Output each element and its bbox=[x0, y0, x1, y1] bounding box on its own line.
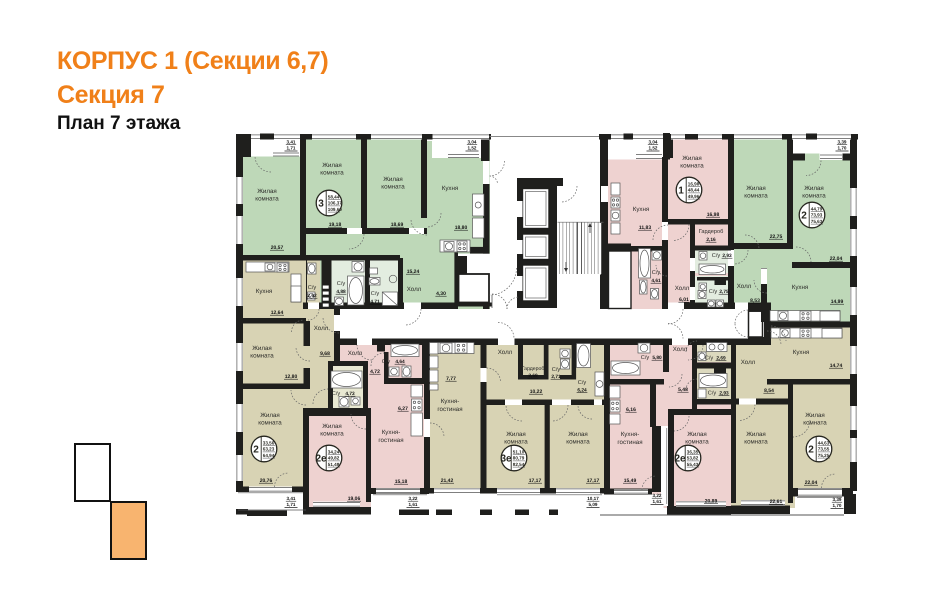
svg-text:2е: 2е bbox=[315, 454, 327, 465]
svg-text:комната: комната bbox=[744, 438, 768, 445]
svg-text:1,52: 1,52 bbox=[468, 146, 477, 151]
svg-text:33,56: 33,56 bbox=[263, 440, 275, 445]
svg-text:Холл: Холл bbox=[741, 359, 756, 366]
svg-text:гостиная: гостиная bbox=[378, 437, 403, 444]
svg-text:Холл: Холл bbox=[675, 285, 690, 292]
svg-text:Холл: Холл bbox=[498, 349, 513, 356]
svg-text:Кухня-: Кухня- bbox=[621, 431, 640, 438]
svg-text:34,24: 34,24 bbox=[328, 449, 340, 454]
svg-text:44,79: 44,79 bbox=[811, 206, 823, 211]
svg-text:комната: комната bbox=[744, 192, 768, 199]
svg-text:Кухня: Кухня bbox=[633, 206, 650, 213]
svg-text:Гардероб: Гардероб bbox=[699, 228, 724, 235]
svg-text:80,79: 80,79 bbox=[513, 456, 525, 461]
svg-text:комната: комната bbox=[381, 183, 405, 190]
svg-text:С/у: С/у bbox=[652, 269, 661, 276]
svg-text:Жилая: Жилая bbox=[260, 412, 280, 419]
svg-text:55,43: 55,43 bbox=[687, 462, 699, 467]
svg-text:3,39: 3,39 bbox=[833, 497, 842, 502]
svg-text:комната: комната bbox=[680, 162, 704, 169]
svg-text:С/у: С/у bbox=[332, 390, 341, 397]
svg-text:106,37: 106,37 bbox=[328, 201, 342, 206]
svg-text:С/у: С/у bbox=[578, 379, 587, 386]
svg-text:Кухня: Кухня bbox=[256, 288, 273, 295]
svg-text:С/у: С/у bbox=[552, 366, 561, 373]
svg-text:109,60: 109,60 bbox=[328, 207, 342, 212]
svg-text:комната: комната bbox=[803, 419, 827, 426]
svg-text:75,25: 75,25 bbox=[818, 453, 830, 458]
svg-text:3,04: 3,04 bbox=[649, 140, 658, 145]
svg-text:Холл: Холл bbox=[314, 325, 329, 332]
svg-text:36,35: 36,35 bbox=[687, 449, 699, 454]
svg-text:10,17: 10,17 bbox=[587, 496, 599, 501]
svg-text:С/у: С/у bbox=[641, 354, 650, 361]
svg-text:1: 1 bbox=[678, 186, 684, 197]
svg-text:44,63: 44,63 bbox=[818, 440, 830, 445]
svg-text:С/у: С/у bbox=[371, 290, 380, 297]
svg-text:Кухня-: Кухня- bbox=[441, 398, 460, 405]
svg-text:2: 2 bbox=[253, 445, 259, 456]
svg-text:2е: 2е bbox=[674, 454, 686, 465]
svg-text:1,70: 1,70 bbox=[838, 146, 847, 151]
svg-text:Жилая: Жилая bbox=[568, 431, 588, 438]
svg-text:комната: комната bbox=[802, 192, 826, 199]
svg-text:Жилая: Жилая bbox=[804, 185, 824, 192]
svg-text:Жилая: Жилая bbox=[257, 188, 277, 195]
svg-text:73,93: 73,93 bbox=[811, 213, 823, 218]
svg-text:51,10: 51,10 bbox=[513, 449, 525, 454]
svg-text:63,23: 63,23 bbox=[263, 447, 275, 452]
svg-text:3,41: 3,41 bbox=[287, 140, 296, 145]
svg-text:3,39: 3,39 bbox=[838, 140, 847, 145]
svg-text:1,61: 1,61 bbox=[409, 502, 418, 507]
svg-text:1,70: 1,70 bbox=[833, 503, 842, 508]
svg-text:Жилая: Жилая bbox=[383, 176, 403, 183]
svg-text:комната: комната bbox=[566, 438, 590, 445]
svg-text:Жилая: Жилая bbox=[687, 431, 707, 438]
svg-text:3: 3 bbox=[318, 199, 324, 210]
svg-text:С/у: С/у bbox=[382, 358, 391, 365]
svg-text:3,04: 3,04 bbox=[468, 140, 477, 145]
svg-text:С/у: С/у bbox=[709, 288, 718, 295]
svg-text:3е: 3е bbox=[500, 454, 512, 465]
svg-text:49,96: 49,96 bbox=[688, 194, 700, 199]
svg-text:1,71: 1,71 bbox=[287, 502, 296, 507]
svg-text:Гардероб: Гардероб bbox=[522, 366, 545, 372]
svg-text:64,94: 64,94 bbox=[263, 453, 275, 458]
svg-text:53,82: 53,82 bbox=[687, 456, 699, 461]
svg-text:3,22: 3,22 bbox=[409, 496, 418, 501]
svg-text:комната: комната bbox=[320, 430, 344, 437]
svg-text:С/у: С/у bbox=[705, 355, 714, 362]
svg-text:комната: комната bbox=[320, 169, 344, 176]
svg-text:Жилая: Жилая bbox=[746, 185, 766, 192]
svg-text:Жилая: Жилая bbox=[322, 423, 342, 430]
svg-text:комната: комната bbox=[250, 352, 274, 359]
svg-text:Жилая: Жилая bbox=[746, 431, 766, 438]
svg-text:3,41: 3,41 bbox=[287, 496, 296, 501]
svg-text:2: 2 bbox=[808, 445, 814, 456]
svg-text:51,48: 51,48 bbox=[328, 462, 340, 467]
svg-text:С/у: С/у bbox=[712, 252, 721, 259]
svg-text:5,09: 5,09 bbox=[589, 502, 598, 507]
svg-text:С/у: С/у bbox=[337, 280, 346, 287]
svg-text:3,22: 3,22 bbox=[653, 493, 662, 498]
svg-text:58,44: 58,44 bbox=[328, 194, 340, 199]
svg-text:73,55: 73,55 bbox=[818, 447, 830, 452]
svg-text:49,82: 49,82 bbox=[328, 456, 340, 461]
svg-text:Жилая: Жилая bbox=[805, 412, 825, 419]
svg-text:гостиная: гостиная bbox=[617, 439, 642, 446]
svg-text:Кухня-: Кухня- bbox=[382, 429, 401, 436]
svg-text:Холл: Холл bbox=[348, 350, 363, 357]
svg-text:Жилая: Жилая bbox=[322, 162, 342, 169]
svg-text:гостиная: гостиная bbox=[437, 406, 462, 413]
svg-text:75,63: 75,63 bbox=[811, 219, 823, 224]
svg-text:Жилая: Жилая bbox=[682, 155, 702, 162]
svg-text:комната: комната bbox=[685, 438, 709, 445]
svg-text:48,44: 48,44 bbox=[688, 188, 700, 193]
svg-text:комната: комната bbox=[504, 438, 528, 445]
svg-text:С/у: С/у bbox=[708, 390, 717, 397]
svg-text:1,52: 1,52 bbox=[649, 146, 658, 151]
svg-text:комната: комната bbox=[258, 419, 282, 426]
svg-text:16,98: 16,98 bbox=[688, 181, 700, 186]
svg-text:Холл: Холл bbox=[737, 283, 752, 290]
svg-text:комната: комната bbox=[255, 195, 279, 202]
svg-text:Холл: Холл bbox=[673, 346, 688, 353]
svg-text:1,71: 1,71 bbox=[287, 146, 296, 151]
svg-text:Жилая: Жилая bbox=[252, 345, 272, 352]
svg-text:Кухня: Кухня bbox=[793, 349, 810, 356]
svg-text:1,61: 1,61 bbox=[653, 499, 662, 504]
svg-text:Кухня: Кухня bbox=[792, 284, 809, 291]
svg-text:2: 2 bbox=[801, 211, 807, 222]
svg-text:С/у: С/у bbox=[308, 284, 317, 291]
svg-text:82,54: 82,54 bbox=[513, 462, 525, 467]
svg-text:Жилая: Жилая bbox=[506, 431, 526, 438]
svg-text:Холл: Холл bbox=[407, 286, 422, 293]
svg-text:Кухня: Кухня bbox=[442, 185, 459, 192]
